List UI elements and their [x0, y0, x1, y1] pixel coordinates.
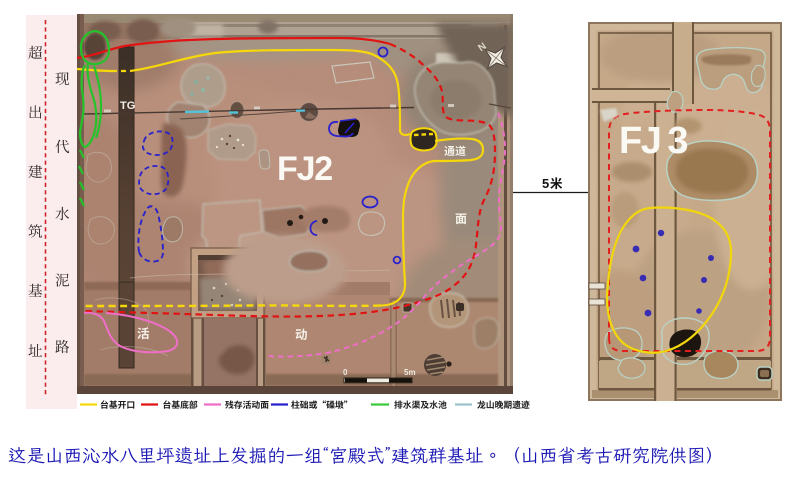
svg-text:TG: TG	[120, 100, 135, 112]
svg-text:0: 0	[343, 368, 348, 377]
svg-text:5m: 5m	[404, 368, 416, 377]
svg-text:FJ2: FJ2	[277, 150, 332, 188]
svg-text:5: 5	[542, 176, 549, 191]
svg-text:FJ 3: FJ 3	[619, 120, 687, 162]
